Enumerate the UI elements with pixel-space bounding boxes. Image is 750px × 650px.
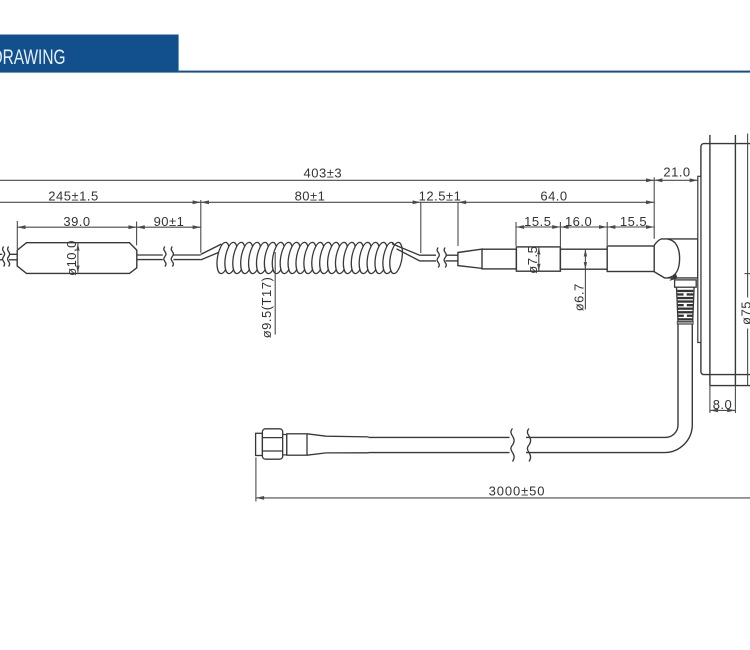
svg-text:12.5±1: 12.5±1 <box>419 189 462 204</box>
svg-text:16.0: 16.0 <box>565 214 592 229</box>
svg-text:21.0: 21.0 <box>663 165 690 180</box>
svg-text:90±1: 90±1 <box>154 214 185 229</box>
svg-text:DRAWING: DRAWING <box>0 45 66 69</box>
svg-text:64.0: 64.0 <box>540 189 567 204</box>
svg-text:80±1: 80±1 <box>295 189 326 204</box>
svg-text:3000±50: 3000±50 <box>489 484 546 499</box>
svg-text:8.0: 8.0 <box>713 397 733 412</box>
svg-text:39.0: 39.0 <box>63 214 90 229</box>
svg-text:403±3: 403±3 <box>304 166 343 181</box>
svg-text:ø9.5(T17): ø9.5(T17) <box>259 277 274 339</box>
svg-text:ø6.7: ø6.7 <box>572 283 587 311</box>
svg-text:15.5: 15.5 <box>524 214 551 229</box>
svg-text:ø10.0: ø10.0 <box>64 240 79 276</box>
svg-text:245±1.5: 245±1.5 <box>48 189 98 204</box>
svg-text:15.5: 15.5 <box>620 214 647 229</box>
svg-text:ø75: ø75 <box>739 301 750 325</box>
svg-text:ø7.5: ø7.5 <box>525 246 540 274</box>
